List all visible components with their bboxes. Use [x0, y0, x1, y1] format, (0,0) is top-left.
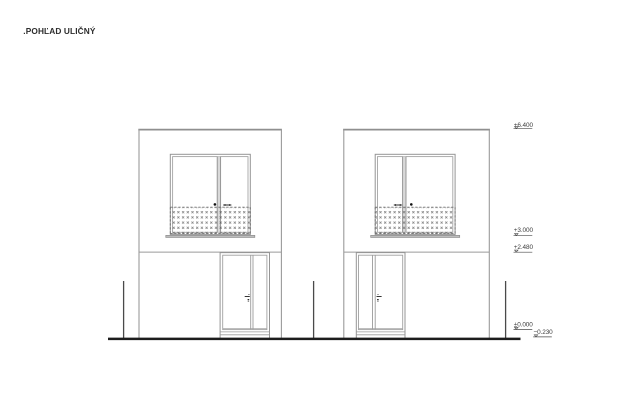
- svg-text:−0.230: −0.230: [534, 329, 554, 336]
- svg-text:+3.000: +3.000: [514, 227, 534, 234]
- svg-text:.POHĽAD ULIČNÝ: .POHĽAD ULIČNÝ: [23, 25, 96, 36]
